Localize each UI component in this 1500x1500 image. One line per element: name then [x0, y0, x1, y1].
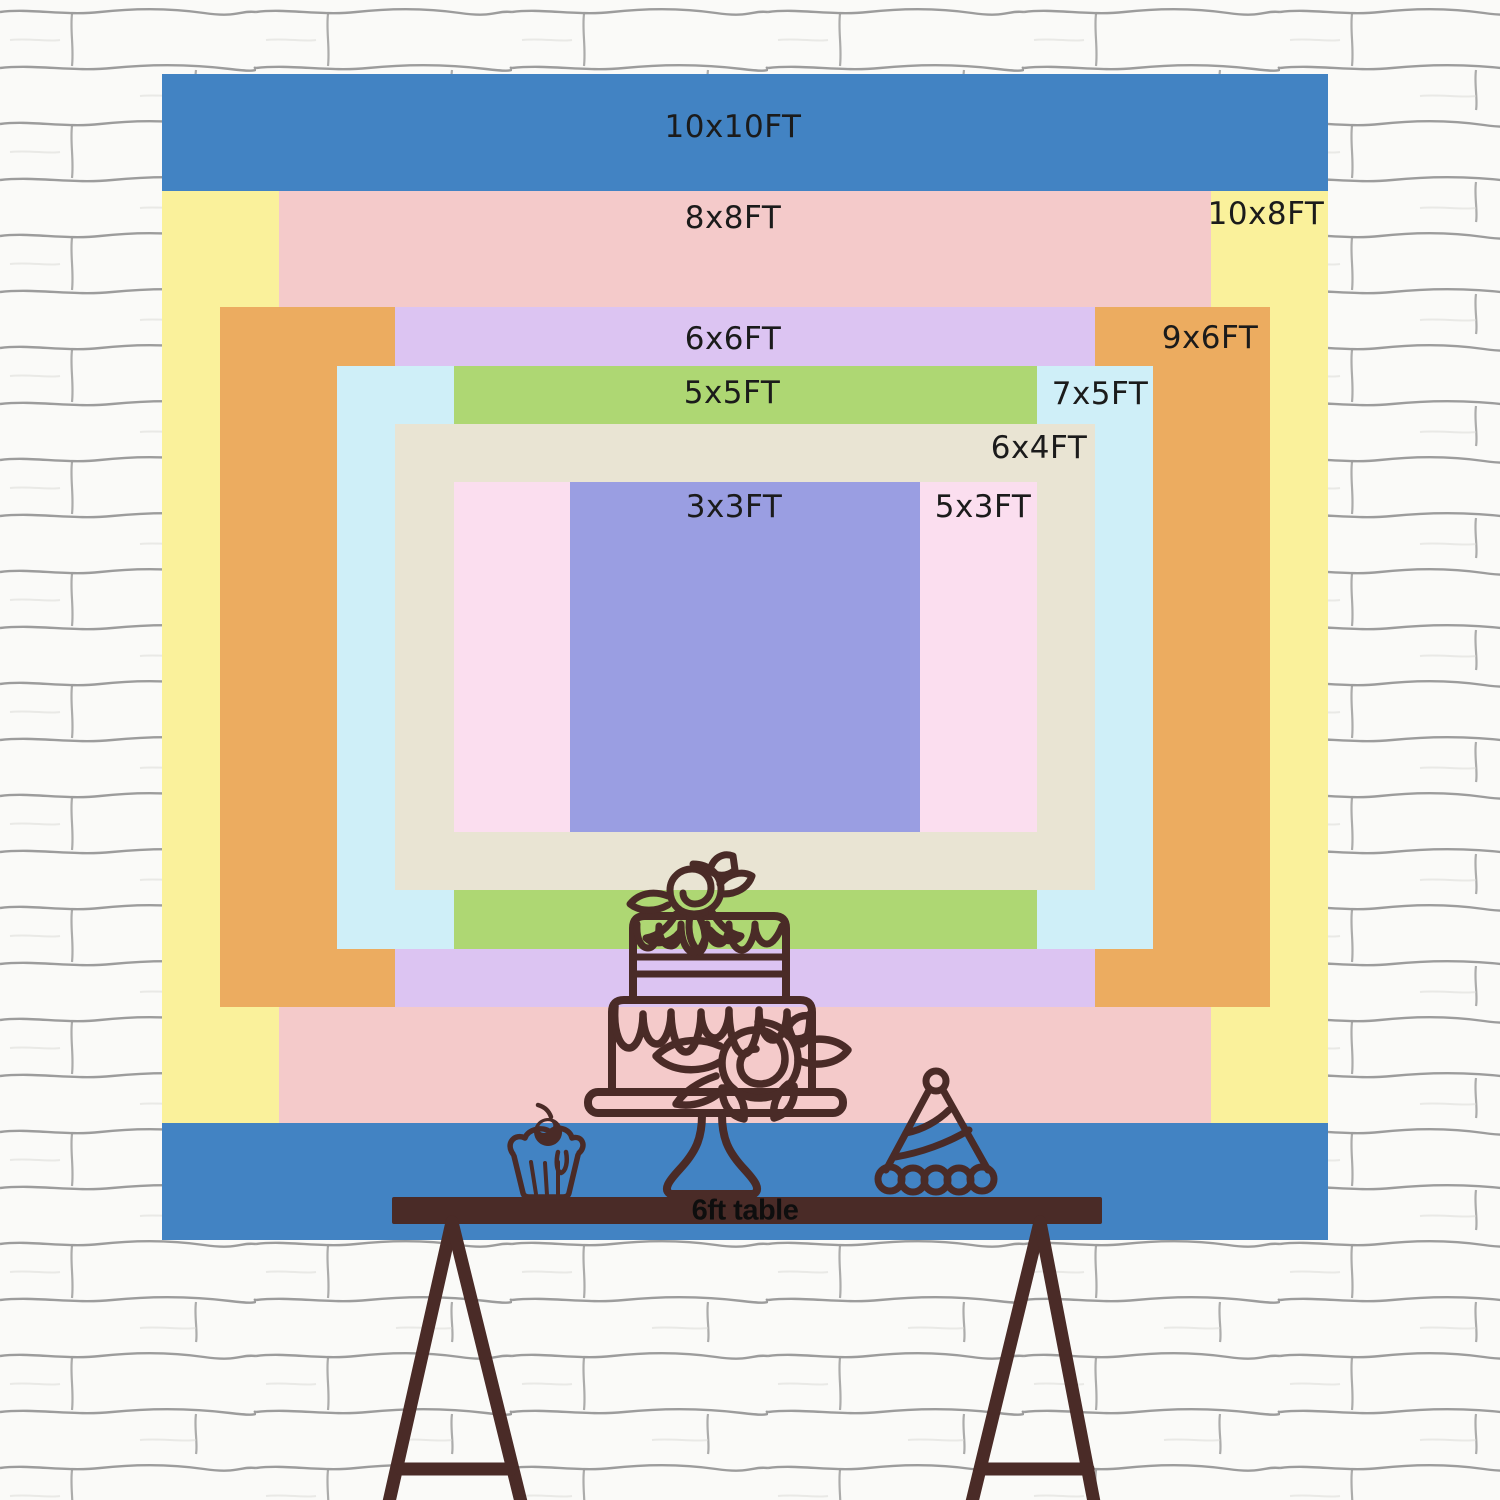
cupcake-illustration — [510, 1105, 583, 1197]
cupcake-pleat-2 — [545, 1163, 547, 1195]
cake-bottom-flower — [656, 1016, 848, 1119]
illustration-layer — [0, 0, 1500, 1500]
table-illustration — [389, 1197, 1102, 1500]
cupcake-pleat-1 — [531, 1162, 536, 1194]
table-size-label: 6ft table — [692, 1195, 799, 1228]
table-legs — [389, 1222, 1094, 1500]
cupcake-frosting-drip — [557, 1152, 567, 1173]
cake-stand-pedestal — [667, 1115, 757, 1194]
cake-illustration — [588, 855, 848, 1194]
backdrop-size-chart-image: 10x10FT10x8FT8x8FT9x6FT6x6FT7x5FT5x5FT6x… — [0, 0, 1500, 1500]
party-hat-trim — [878, 1167, 994, 1192]
cake-top-rose — [630, 855, 752, 952]
party-hat-illustration — [878, 1071, 994, 1192]
cupcake-cherry-stem — [538, 1105, 551, 1117]
